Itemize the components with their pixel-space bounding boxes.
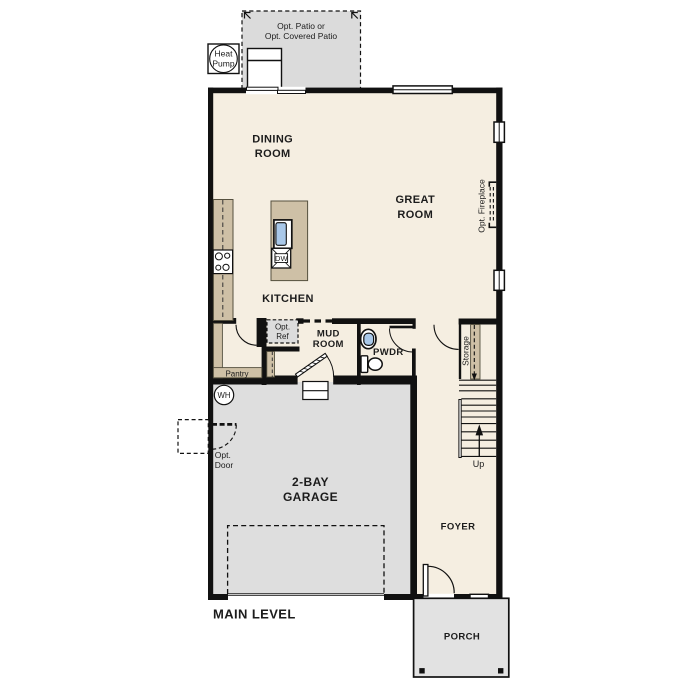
- svg-text:GARAGE: GARAGE: [283, 490, 338, 504]
- svg-text:ROOM: ROOM: [397, 209, 433, 221]
- svg-text:MAIN LEVEL: MAIN LEVEL: [213, 606, 296, 621]
- svg-text:FOYER: FOYER: [441, 522, 476, 533]
- svg-text:PWDR: PWDR: [373, 347, 404, 358]
- svg-text:Pantry: Pantry: [225, 369, 248, 378]
- svg-text:Ref: Ref: [276, 332, 289, 341]
- svg-text:Heat: Heat: [215, 49, 234, 59]
- svg-text:Opt. Covered Patio: Opt. Covered Patio: [265, 31, 338, 41]
- svg-text:WH: WH: [218, 391, 231, 400]
- svg-text:Storage: Storage: [461, 336, 471, 366]
- svg-text:ROOM: ROOM: [313, 339, 344, 350]
- svg-text:DINING: DINING: [252, 134, 293, 146]
- svg-text:Opt.: Opt.: [275, 323, 290, 332]
- svg-text:Up: Up: [473, 459, 485, 469]
- svg-text:KITCHEN: KITCHEN: [262, 293, 314, 305]
- svg-text:MUD: MUD: [317, 328, 340, 339]
- svg-text:Pump: Pump: [212, 58, 234, 68]
- svg-text:2-BAY: 2-BAY: [292, 475, 329, 489]
- svg-text:Opt. Patio or: Opt. Patio or: [277, 21, 325, 31]
- svg-text:Opt. Fireplace: Opt. Fireplace: [477, 179, 487, 233]
- svg-text:ROOM: ROOM: [255, 148, 291, 160]
- svg-text:GREAT: GREAT: [395, 194, 435, 206]
- svg-text:Opt.: Opt.: [215, 450, 231, 460]
- svg-text:Door: Door: [215, 460, 234, 470]
- svg-text:DW: DW: [275, 254, 288, 263]
- svg-text:PORCH: PORCH: [444, 631, 480, 642]
